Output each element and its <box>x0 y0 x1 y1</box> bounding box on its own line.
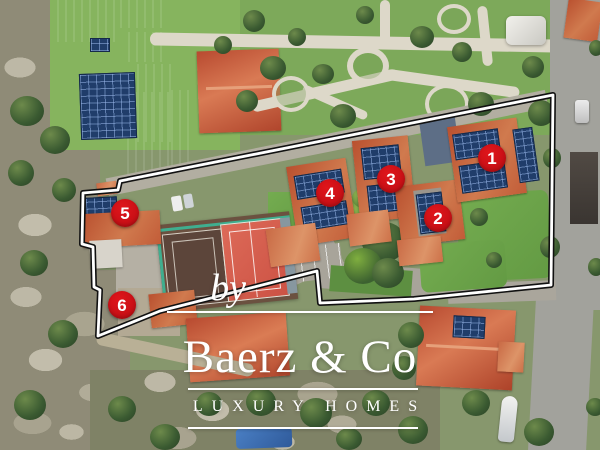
watermark-by: by <box>186 268 270 310</box>
aerial-property-photo: 123456 by Baerz & Co LUXURY HOMES <box>0 0 600 450</box>
property-marker-3: 3 <box>377 165 405 193</box>
property-marker-5: 5 <box>111 199 139 227</box>
property-marker-4: 4 <box>316 179 344 207</box>
watermark-tagline: LUXURY HOMES <box>140 398 470 416</box>
watermark-rule-bottom <box>188 427 418 429</box>
marker-number: 1 <box>487 150 496 167</box>
marker-number: 6 <box>117 297 126 314</box>
watermark-brand-name: Baerz & Co <box>140 334 460 381</box>
marker-number: 3 <box>386 171 395 188</box>
marker-number: 4 <box>325 185 334 202</box>
marker-number: 2 <box>433 210 442 227</box>
property-marker-1: 1 <box>478 144 506 172</box>
watermark-rule-top <box>167 311 433 313</box>
marker-number: 5 <box>120 205 129 222</box>
property-marker-2: 2 <box>424 204 452 232</box>
watermark-rule-middle <box>188 388 418 390</box>
property-marker-6: 6 <box>108 291 136 319</box>
